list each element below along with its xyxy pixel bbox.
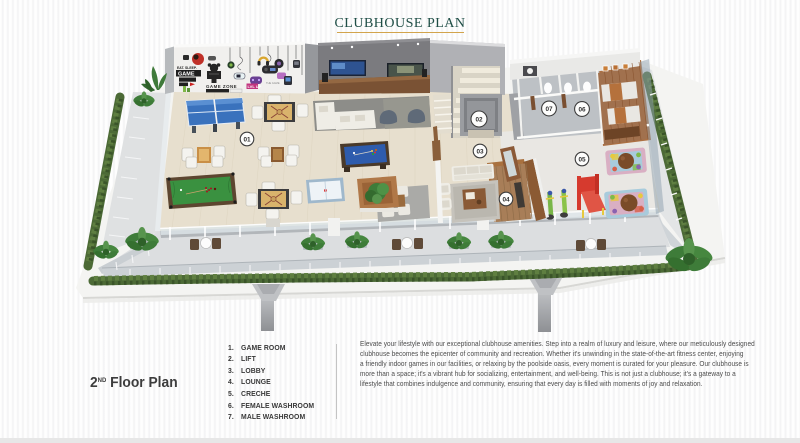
svg-text:07: 07 — [545, 106, 553, 113]
svg-text:06: 06 — [578, 106, 586, 113]
svg-text:EAT. SLEEP.: EAT. SLEEP. — [177, 66, 197, 70]
svg-text:02: 02 — [475, 117, 483, 124]
svg-text:LVL UP: LVL UP — [248, 84, 262, 89]
svg-text:05: 05 — [578, 156, 586, 163]
svg-text:THE GAME: THE GAME — [266, 81, 280, 85]
svg-text:GAME: GAME — [178, 72, 195, 78]
svg-text:GAME ZONE: GAME ZONE — [206, 84, 237, 89]
svg-text:03: 03 — [476, 148, 484, 155]
svg-text:04: 04 — [502, 196, 510, 203]
svg-text:01: 01 — [243, 136, 251, 143]
